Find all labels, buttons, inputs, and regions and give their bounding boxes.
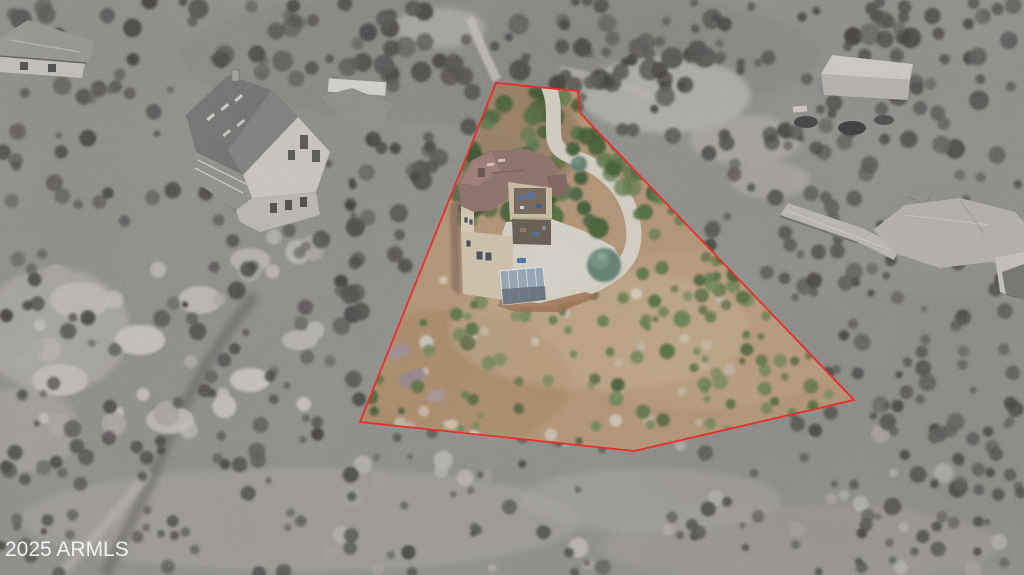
grain-overlay: [0, 0, 1024, 575]
aerial-photo-canvas: [0, 0, 1024, 575]
aerial-listing-photo: 2025 ARMLS: [0, 0, 1024, 575]
armls-watermark: 2025 ARMLS: [5, 538, 129, 562]
